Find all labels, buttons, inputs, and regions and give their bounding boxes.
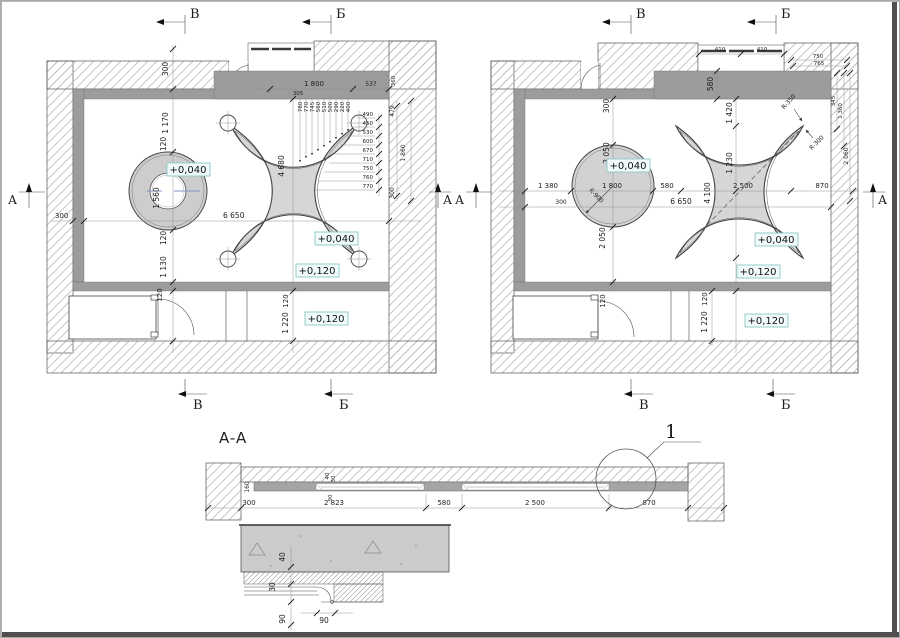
dim-label: 479 [389,105,396,117]
dim-label: 1 560 [152,187,161,209]
section-marker-v-bottom: В [178,379,207,413]
dim-label: 400 [346,101,352,112]
dim-label: 2 500 [733,182,753,190]
callout-number: 1 [665,421,677,443]
dim-label: 300 [602,99,611,114]
dim-label: 305 [293,91,304,97]
dim-label: 30 [331,475,337,482]
dim-label: 1 800 [602,182,622,190]
dim-label: 90 [328,494,334,501]
dim-label: 750 [363,166,374,172]
dim-label: 710 [363,157,374,163]
dim-label: 410 [757,47,768,53]
section-slab [241,467,688,482]
section-view: A-A 300 2 823 580 2 500 870 160 40 30 [205,421,727,521]
section-ceiling-recess [462,484,609,491]
section-marker-a-right: А [863,183,887,208]
level-badge: +0,120 [305,312,348,325]
level-badge: +0,040 [607,159,650,172]
dim-label: 90 [278,614,287,624]
dim-label: 120 [701,292,709,305]
section-letter: Б [336,7,346,22]
level-badge: +0,040 [167,163,210,176]
dim-label: 760 [363,175,374,181]
dim-label: 4 680 [277,155,286,177]
section-letter: В [636,7,646,22]
level-value: +0,040 [169,165,206,176]
door-swing-arc [158,299,194,335]
section-letter: А [443,193,452,207]
section-ceiling-recess [316,484,424,491]
dim-label: 1 170 [161,112,170,134]
dim-label: 2 823 [324,499,344,507]
section-letter: В [193,398,203,413]
right-plan-star-element: R-350 R-300 [676,93,826,258]
dim-label: 1 220 [281,312,290,334]
section-letter: А [8,193,17,207]
section-title: A-A [219,429,247,447]
dim-label: 120 [599,294,607,307]
right-plan-top-door [581,62,600,90]
detail-view: 40 30 90 90 [239,525,451,631]
level-value: +0,040 [757,235,794,246]
dim-label: 1 130 [159,256,168,278]
dim-label: 2 050 [598,227,607,249]
dim-label: 2 060 [843,147,850,164]
dim-label: 40 [278,552,287,562]
section-marker-a-left: А [455,183,492,208]
dim-label: 750 [813,54,824,60]
section-marker-v-bottom: В [624,379,653,413]
dim-label: 4 100 [703,182,712,204]
left-plan-star-element [216,111,371,271]
level-value: +0,120 [307,314,344,325]
section-marker-g-top: Б [302,7,346,34]
detail-concrete-slab [239,525,451,572]
dim-label: 120 [156,288,164,301]
dim-label: 345 [831,95,837,106]
dim-label: 120 [282,294,290,307]
dim-label: 1 230 [725,152,734,174]
section-marker-g-bottom: Б [766,379,795,413]
dim-label: 300 [555,199,567,206]
section-marker-g-top: Б [747,7,791,34]
dim-label: 1 360 [838,103,844,119]
level-value: +0,040 [609,161,646,172]
section-letter: Б [339,398,349,413]
drawing-canvas: 300 1 170 120 1 560 120 1 130 120 120 1 … [1,1,900,638]
section-left-pier [206,463,241,520]
section-letter: Б [781,398,791,413]
dim-label: 360 [391,75,397,86]
dim-label: 1 800 [304,80,324,88]
dim-label: 6 650 [223,211,245,220]
detail-callout: 1 [596,421,701,509]
dim-label: 160 [244,481,251,493]
dim-label: 300 [161,62,170,77]
level-value: +0,120 [739,267,776,278]
section-letter: Б [781,7,791,22]
section-marker-v-top: В [156,7,200,34]
dim-label: 600 [363,139,374,145]
dim-label: 870 [815,182,828,190]
dim-label: 670 [363,148,374,154]
left-plan: 300 1 170 120 1 560 120 1 130 120 120 1 … [8,7,452,413]
dim-label: 770 [363,184,374,190]
dim-label: 6 650 [670,197,692,206]
section-marker-g-bottom: Б [324,379,353,413]
level-value: +0,120 [747,316,784,327]
section-right-pier [688,463,724,521]
dim-label: 490 [363,112,374,118]
dim-label: 537 [365,81,377,88]
level-badge: +0,120 [745,314,788,327]
dim-label: 120 [159,137,168,152]
dim-label: 450 [363,121,374,127]
right-plan: R-900 R-350 R-300 [455,7,887,413]
dim-label: 30 [268,582,277,592]
level-badge: +0,040 [755,233,798,246]
dim-label: 300 [55,212,68,220]
dim-label: 300 [389,187,396,199]
dim-label: 530 [363,130,374,136]
section-marker-a-left: А [8,183,45,208]
level-badge: +0,120 [737,265,780,278]
dim-label: 1 420 [725,102,734,124]
dim-label: 300 [242,499,255,507]
section-letter: А [878,193,887,207]
level-badge: +0,120 [296,264,339,277]
section-letter: В [639,398,649,413]
level-badge: +0,040 [315,232,358,245]
dim-label: 1 220 [700,311,709,333]
dim-label: 90 [319,616,329,625]
section-marker-v-top: В [602,7,646,34]
radius-label: R-300 [808,134,825,151]
scanned-ceiling-plan-drawing: 300 1 170 120 1 560 120 1 130 120 120 1 … [0,0,900,638]
dim-label: 580 [660,182,673,190]
section-letter: А [455,193,464,207]
level-value: +0,040 [317,234,354,245]
dim-label: 120 [159,231,168,246]
level-value: +0,120 [298,266,335,277]
dim-label: 1 860 [400,144,407,161]
dim-label: 410 [715,47,726,53]
section-letter: В [190,7,200,22]
dim-label: 2 500 [525,499,545,507]
dim-label: 1 380 [538,182,558,190]
dim-label: 765 [814,61,825,67]
dim-label: 580 [706,77,715,92]
dim-label: 580 [437,499,450,507]
